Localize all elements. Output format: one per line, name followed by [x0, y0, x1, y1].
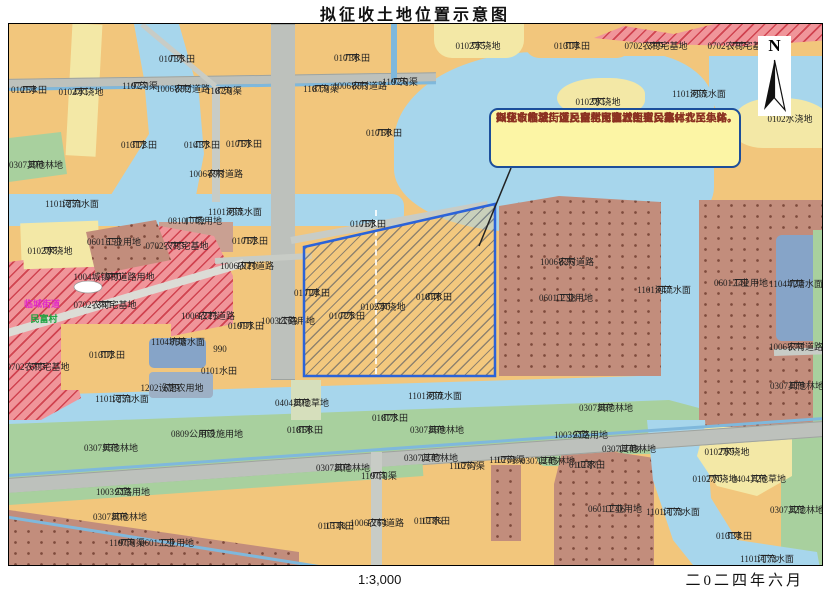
page-title: 拟征收土地位置示意图 [0, 1, 830, 25]
map-labels: 2540101水田4410102水浇地7350101水田9271107沟渠882… [9, 24, 822, 565]
map-canvas: 2540101水田4410102水浇地7350101水田9271107沟渠882… [8, 23, 823, 566]
callout-line-4: 四至：东至厂区、南至河流、西至公路、北至小路。 [496, 112, 738, 125]
callout-box: 拟征收地块：涉及兴化市临城街道民富村农民集体， 兴化市临城街道民富村民富五组农民… [489, 108, 741, 168]
north-arrow: N [758, 36, 791, 116]
land-acquisition-map-page: 拟征收土地位置示意图 [0, 0, 830, 596]
bottom-bar: 1:3,000 二0二四年六月 [0, 566, 830, 596]
map-date: 二0二四年六月 [685, 569, 804, 590]
map-scale: 1:3,000 [358, 572, 401, 587]
north-label: N [758, 36, 791, 56]
north-arrow-icon [758, 56, 791, 114]
